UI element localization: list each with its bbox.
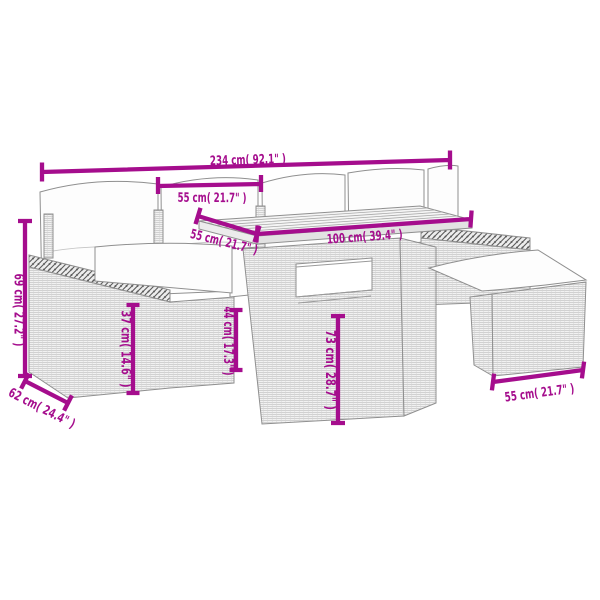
dimension-armrest-height: 44 cm( 17.3" ) <box>220 307 243 376</box>
furniture-line-art <box>29 165 586 424</box>
dim-label-back-height: 69 cm( 27.2" ) <box>11 274 26 347</box>
diagram-canvas: 234 cm( 92.1" ) 55 cm( 21.7" ) 55 cm( 21… <box>0 0 600 600</box>
dim-label-armrest-height: 44 cm( 17.3" ) <box>220 307 235 376</box>
ottoman-base-front <box>492 282 586 376</box>
table-body-side <box>400 238 436 416</box>
product-dimension-diagram: 234 cm( 92.1" ) 55 cm( 21.7" ) 55 cm( 21… <box>0 0 600 600</box>
ottoman-right <box>429 250 586 376</box>
ottoman-base-side <box>470 294 493 376</box>
dim-label-seat-width: 55 cm( 21.7" ) <box>177 191 246 207</box>
dim-label-table-height: 73 cm( 28.7" ) <box>322 330 337 410</box>
back-post <box>44 214 53 258</box>
dim-label-overall-width: 234 cm( 92.1" ) <box>210 152 286 169</box>
dim-label-stool-width: 55 cm( 21.7" ) <box>504 382 575 406</box>
dim-label-seat-height: 37 cm( 14.6" ) <box>118 311 133 388</box>
